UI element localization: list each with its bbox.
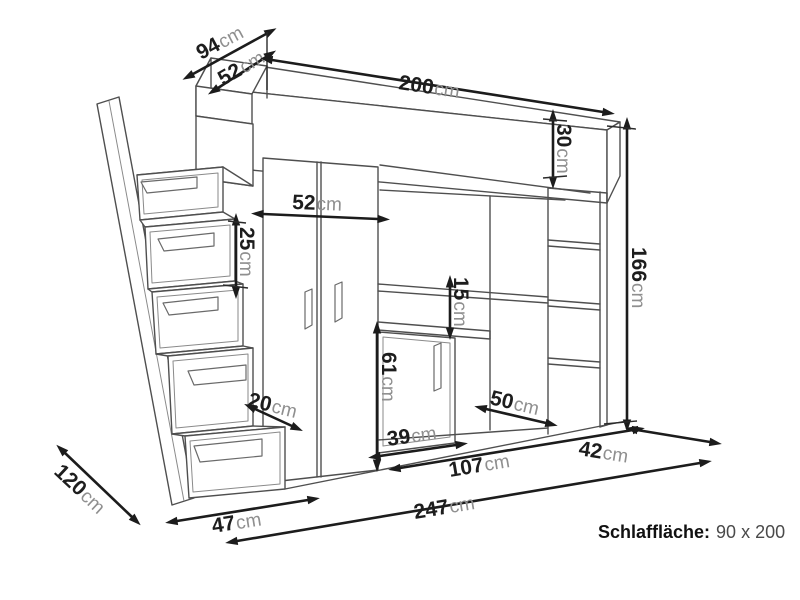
dimension-label-166cm: 166cm <box>627 247 650 308</box>
dimension-label-15cm: 15cm <box>449 277 472 327</box>
shelf-3b <box>548 364 600 368</box>
dimension-label-61cm: 61cm <box>377 352 400 402</box>
diagram-canvas: 94cm 52cm 200cm 30cm 166cm 52cm 25cm 15c… <box>0 0 800 600</box>
dimension-label-107cm: 107cm <box>447 449 511 482</box>
dimension-label-30cm: 30cm <box>552 124 575 174</box>
dimension-50cm: 50cm <box>486 386 546 423</box>
dimension-label-25cm: 25cm <box>235 227 258 277</box>
niche-cabinet-handle <box>434 343 441 391</box>
shelf-section <box>548 188 607 434</box>
wardrobe-left-door-handle <box>305 289 312 329</box>
stair-step-2 <box>145 219 235 289</box>
desk-niche <box>378 165 590 453</box>
dimension-15cm: 15cm <box>449 277 472 328</box>
stair-step-4 <box>168 348 253 434</box>
dimension-label-50cm: 50cm <box>488 386 542 420</box>
furniture-dimension-diagram: 94cm 52cm 200cm 30cm 166cm 52cm 25cm 15c… <box>0 0 800 600</box>
dimension-120cm: 120cm <box>50 453 132 519</box>
desk-top-edge <box>378 322 490 331</box>
wardrobe-right-door-handle <box>335 282 342 322</box>
bed-right-end <box>607 122 620 203</box>
shelf-1a <box>548 240 600 244</box>
dimension-label-247cm: 247cm <box>412 491 476 524</box>
shelf-2b <box>548 306 600 310</box>
stair-step-3 <box>152 284 243 354</box>
shelf-3a <box>548 358 600 362</box>
dimension-arrow-42cm <box>637 430 710 442</box>
sleeping-area-note: Schlaffläche:90 x 200 <box>598 522 785 542</box>
shelf-2a <box>548 300 600 304</box>
shelf-1b <box>548 246 600 250</box>
dimension-label-42cm: 42cm <box>577 437 630 467</box>
dimension-label-52cm-wardrobe: 52cm <box>292 191 342 216</box>
stair-step-1 <box>137 167 223 220</box>
